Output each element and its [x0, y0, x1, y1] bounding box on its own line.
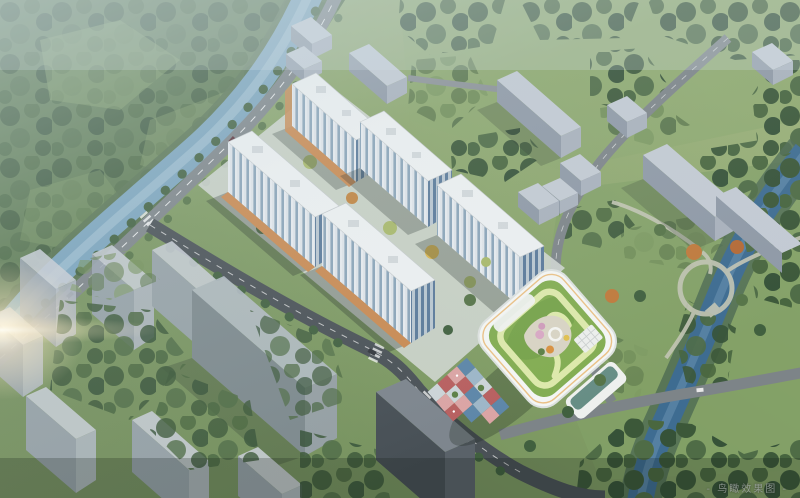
watermark-label: - 鸟瞰效果图 -	[706, 480, 788, 495]
aerial-rendering-canvas: - 鸟瞰效果图 -	[0, 0, 800, 498]
atmosphere-overlays	[0, 0, 800, 498]
rendered-scene	[0, 0, 800, 498]
